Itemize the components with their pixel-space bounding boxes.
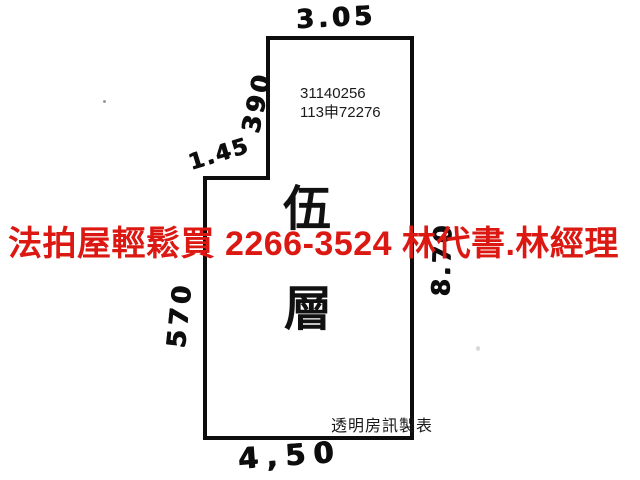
scan-speckle bbox=[476, 346, 480, 351]
dimension-top: 3.05 bbox=[295, 1, 377, 35]
advertisement-overlay-text: 法拍屋輕鬆買 2266-3524 林代書.林經理 bbox=[8, 216, 619, 265]
floorplan-page: 3.05 390 1.45 570 8.70 4,50 31140256 113… bbox=[0, 0, 640, 480]
producer-credit: 透明房訊製表 bbox=[331, 412, 433, 436]
dimension-bottom: 4,50 bbox=[237, 434, 343, 475]
scan-speckle bbox=[103, 100, 106, 103]
floor-label-char-2: 層 bbox=[284, 286, 332, 334]
case-number-block: 31140256 113申72276 bbox=[300, 84, 381, 122]
case-number-line1: 31140256 bbox=[300, 84, 381, 103]
case-number-line2: 113申72276 bbox=[300, 103, 381, 122]
